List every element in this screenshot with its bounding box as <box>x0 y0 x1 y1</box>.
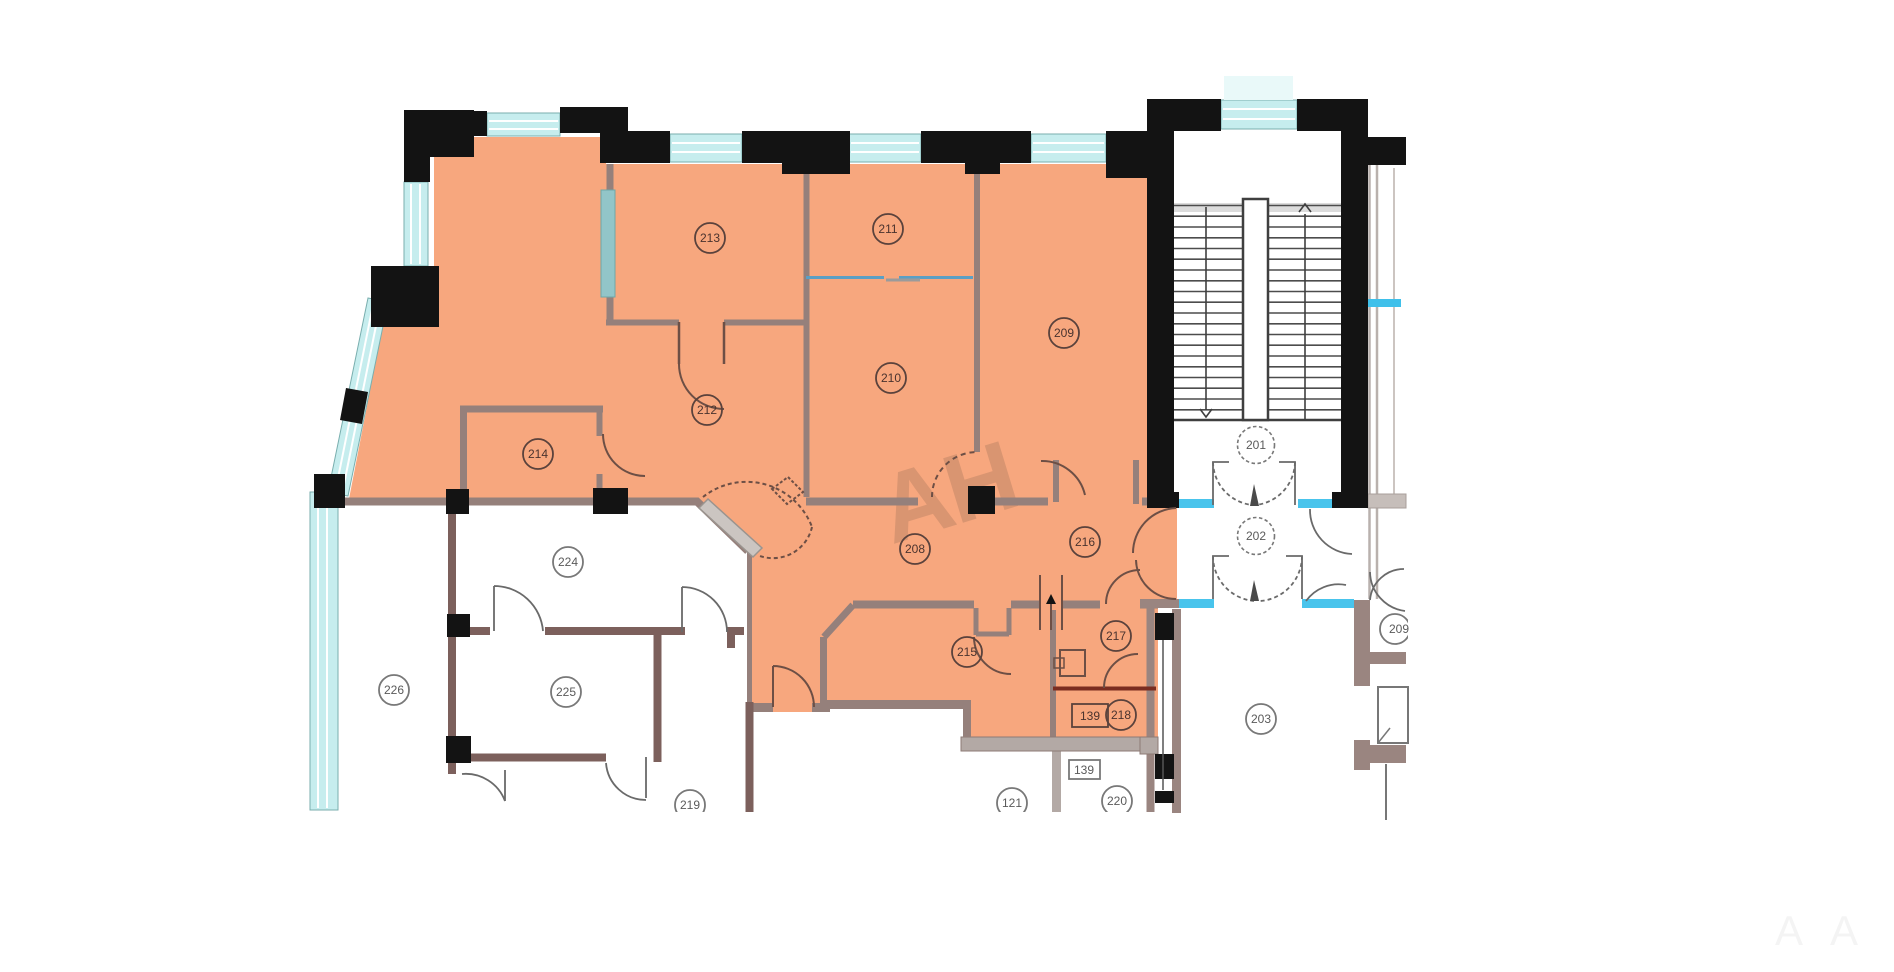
svg-text:139: 139 <box>1080 709 1100 723</box>
svg-text:220: 220 <box>1107 794 1127 808</box>
svg-text:121: 121 <box>1002 796 1022 810</box>
svg-text:212: 212 <box>697 403 717 417</box>
svg-text:219: 219 <box>680 798 700 812</box>
svg-text:217: 217 <box>1106 629 1126 643</box>
svg-text:218: 218 <box>1111 708 1131 722</box>
svg-text:225: 225 <box>556 685 576 699</box>
svg-text:216: 216 <box>1075 535 1095 549</box>
svg-text:208: 208 <box>905 542 925 556</box>
svg-text:209: 209 <box>1054 326 1074 340</box>
svg-text:139: 139 <box>1074 763 1094 777</box>
svg-text:202: 202 <box>1246 529 1266 543</box>
svg-text:224: 224 <box>558 555 578 569</box>
svg-text:213: 213 <box>700 231 720 245</box>
svg-text:203: 203 <box>1251 712 1271 726</box>
svg-text:211: 211 <box>878 222 897 236</box>
svg-text:226: 226 <box>384 683 404 697</box>
svg-text:201: 201 <box>1246 438 1266 452</box>
svg-text:214: 214 <box>528 447 548 461</box>
svg-text:А: А <box>1830 907 1858 954</box>
svg-text:210: 210 <box>881 371 901 385</box>
svg-text:А: А <box>1775 907 1803 954</box>
svg-text:215: 215 <box>957 645 977 659</box>
svg-text:209: 209 <box>1389 622 1409 636</box>
